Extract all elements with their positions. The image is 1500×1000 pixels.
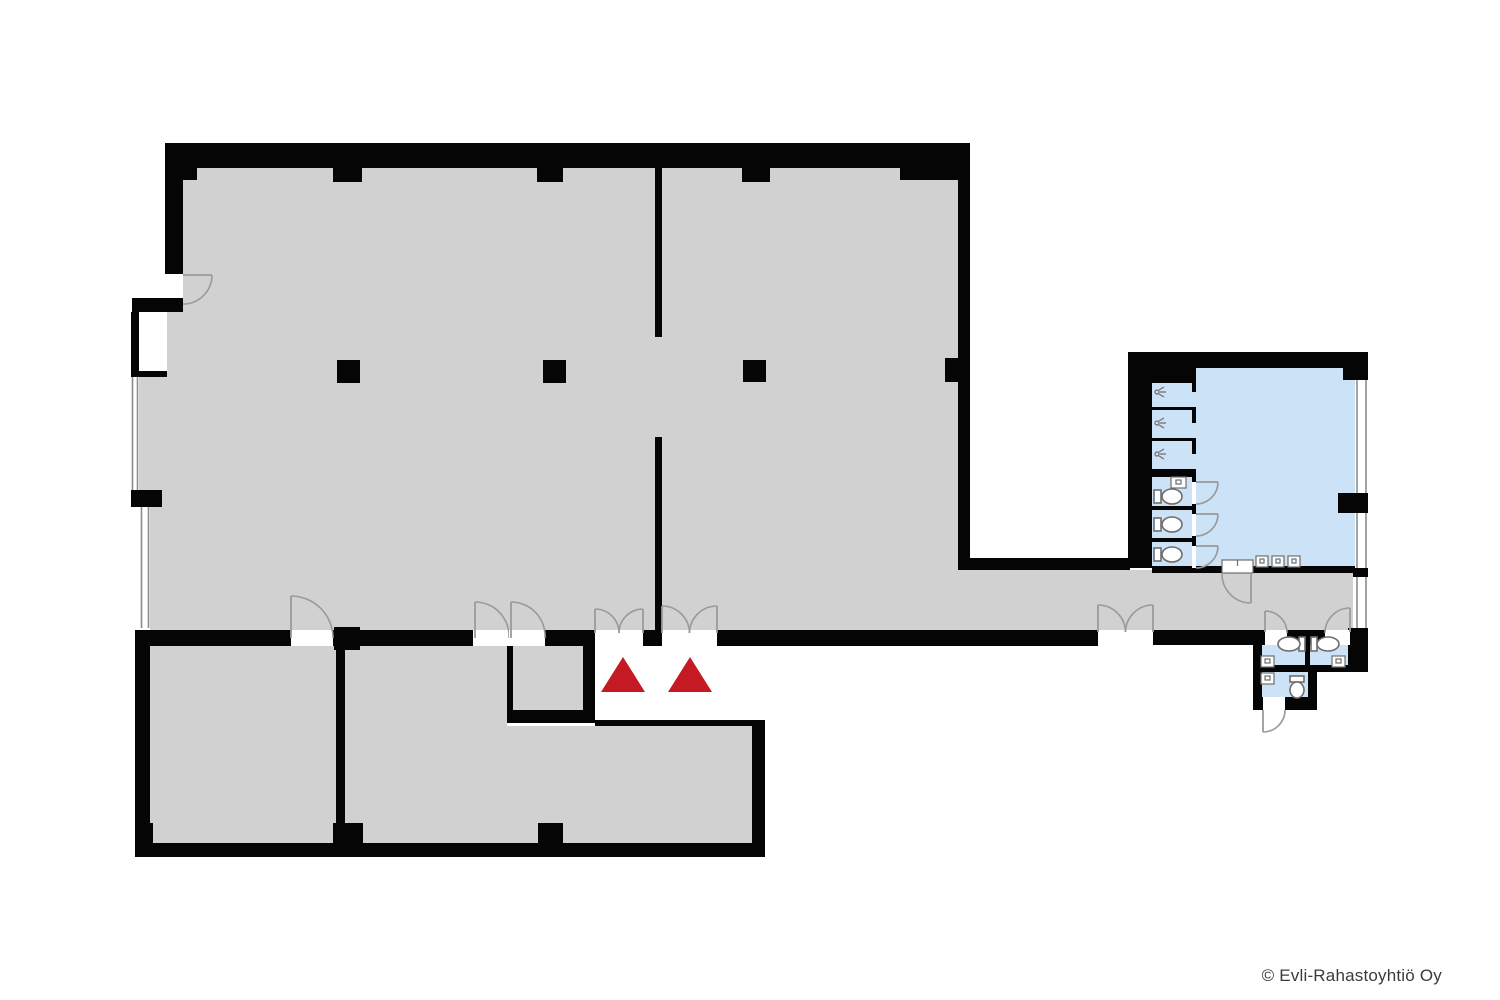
wall-pilaster [945, 358, 958, 382]
wall-pier [1338, 493, 1368, 513]
toilet-icon [1311, 637, 1339, 651]
main-hall-floor [139, 168, 958, 633]
window [1355, 577, 1368, 628]
wall-segment [165, 143, 970, 168]
shower-partition [1152, 438, 1192, 441]
wall-pilaster [145, 823, 153, 843]
washroom-wall [1128, 352, 1152, 568]
wall-segment [135, 630, 150, 857]
sink-icon [1171, 477, 1186, 488]
wall-segment [131, 371, 167, 377]
toilet-icon [1290, 676, 1304, 698]
wall-pilaster [333, 168, 362, 182]
wall-segment [655, 437, 662, 633]
wall-pilaster [537, 168, 563, 182]
column [543, 360, 566, 383]
stall-partition [1192, 477, 1196, 482]
toilet-icon [1278, 637, 1305, 651]
stall-partition [1192, 407, 1196, 423]
washroom-wall [1152, 566, 1222, 573]
column [743, 360, 766, 382]
wall-segment [655, 168, 662, 337]
wall-segment [131, 312, 139, 377]
shower-partition [1152, 469, 1196, 477]
room-divider-wall [336, 650, 345, 823]
closet-wall [507, 633, 513, 723]
wall-pilaster [334, 627, 360, 650]
closet-wall [507, 710, 595, 723]
wall-pilaster [1343, 352, 1368, 380]
wall-segment [958, 143, 970, 570]
entrance-recess-wall [595, 720, 765, 726]
wall-segment [1353, 568, 1368, 577]
door [1263, 697, 1285, 732]
wall-segment [135, 630, 291, 646]
stall-partition [1192, 438, 1196, 454]
wall-pilaster [900, 166, 958, 180]
wall-segment [1153, 630, 1265, 645]
wall-segment [717, 630, 1098, 646]
wc-block-wall [1253, 697, 1263, 710]
room-1-floor [150, 638, 336, 843]
wc-partition [1152, 538, 1196, 542]
entrance-arrow-icon [601, 657, 645, 692]
corridor-floor [958, 570, 1353, 633]
window [140, 507, 150, 628]
wall-pilaster [742, 168, 770, 182]
column [337, 360, 360, 383]
wall-pilaster [1152, 368, 1195, 383]
wall-segment [132, 298, 183, 312]
wc-partition [1152, 506, 1196, 510]
wall-segment [958, 558, 1130, 570]
closet-wall [583, 630, 595, 723]
wall-pilaster [538, 823, 563, 843]
washroom-wall [1128, 352, 1368, 368]
wc-block-wall [1285, 697, 1317, 710]
toilet-icon [1154, 489, 1182, 504]
wall-pier [131, 490, 162, 507]
shower-partition [1152, 407, 1192, 410]
floor-plan-page: © Evli-Rahastoyhtiö Oy [0, 0, 1500, 1000]
window [1355, 380, 1368, 493]
entrance-markers [601, 657, 712, 692]
sink-icon [1261, 656, 1274, 667]
stall-partition [1192, 368, 1196, 392]
toilet-icon [1154, 517, 1182, 532]
floor-areas [139, 168, 1355, 843]
sink-icon [1332, 656, 1345, 667]
wall-segment [643, 630, 662, 646]
sink-icon [1261, 673, 1274, 684]
wall-segment [135, 843, 765, 857]
toilet-icon [1154, 547, 1182, 562]
window [1355, 513, 1368, 568]
sink-icon [1288, 556, 1300, 567]
wall-pilaster [183, 166, 197, 180]
wall-segment [165, 143, 183, 274]
floor-plan-drawing [0, 0, 1500, 1000]
sink-icon [1256, 556, 1268, 567]
entrance-arrow-icon [668, 657, 712, 692]
storage-closet-floor [513, 638, 583, 710]
window [131, 377, 139, 490]
sink-icon [1272, 556, 1284, 567]
wall-pilaster [333, 823, 363, 843]
copyright-text: © Evli-Rahastoyhtiö Oy [1262, 966, 1442, 986]
wall-segment [752, 720, 765, 857]
